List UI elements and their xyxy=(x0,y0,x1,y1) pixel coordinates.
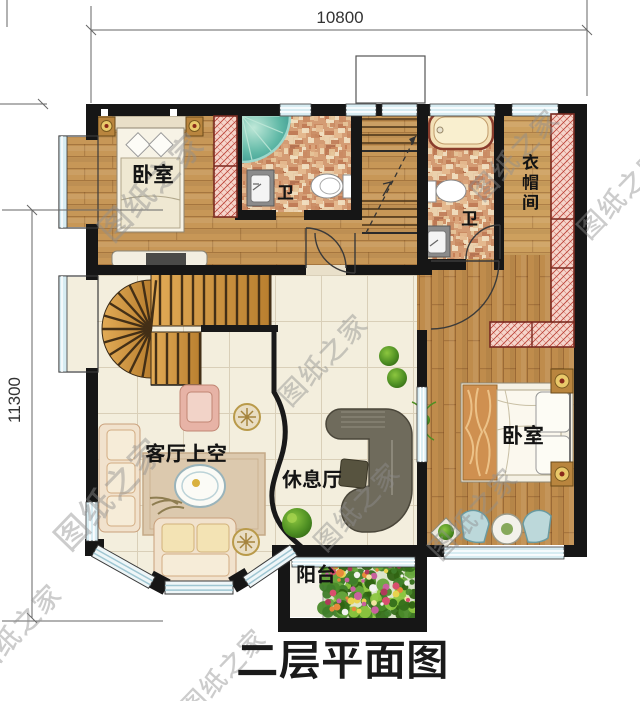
svg-text:10800: 10800 xyxy=(316,8,363,27)
svg-text:11300: 11300 xyxy=(5,377,24,423)
